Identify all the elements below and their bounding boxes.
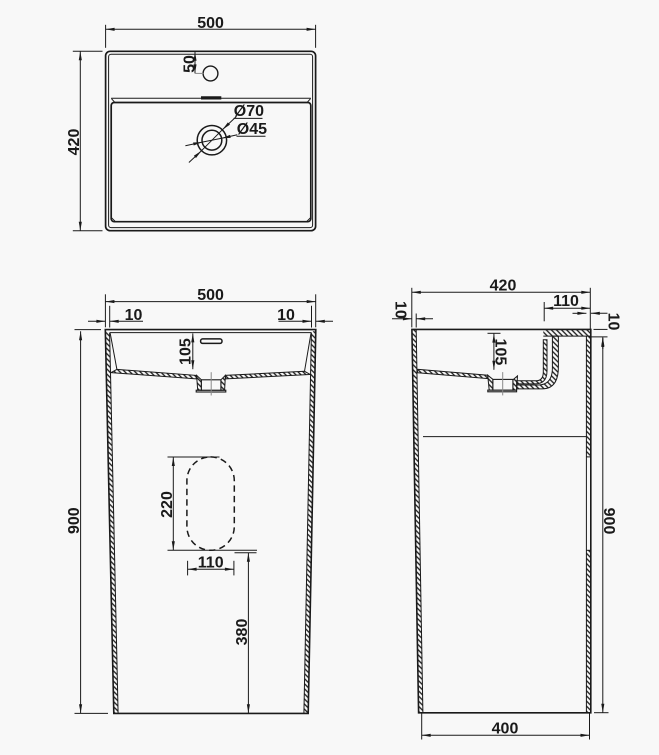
svg-text:900: 900 [600,508,617,535]
svg-text:900: 900 [66,507,83,534]
svg-text:10: 10 [277,307,295,324]
svg-text:110: 110 [553,293,579,310]
svg-text:110: 110 [198,555,224,572]
svg-text:10: 10 [125,307,143,324]
svg-text:420: 420 [490,278,517,295]
svg-text:380: 380 [234,619,251,646]
svg-text:Ø45: Ø45 [237,121,267,138]
svg-text:400: 400 [492,721,519,738]
svg-text:Ø70: Ø70 [234,103,264,120]
svg-text:10: 10 [392,301,409,319]
svg-text:105: 105 [491,339,508,366]
svg-text:420: 420 [66,129,83,156]
svg-text:105: 105 [178,338,195,365]
svg-text:220: 220 [159,491,176,518]
svg-text:50: 50 [182,55,199,73]
svg-text:500: 500 [197,287,224,304]
svg-text:10: 10 [604,313,621,331]
svg-text:500: 500 [197,15,224,32]
